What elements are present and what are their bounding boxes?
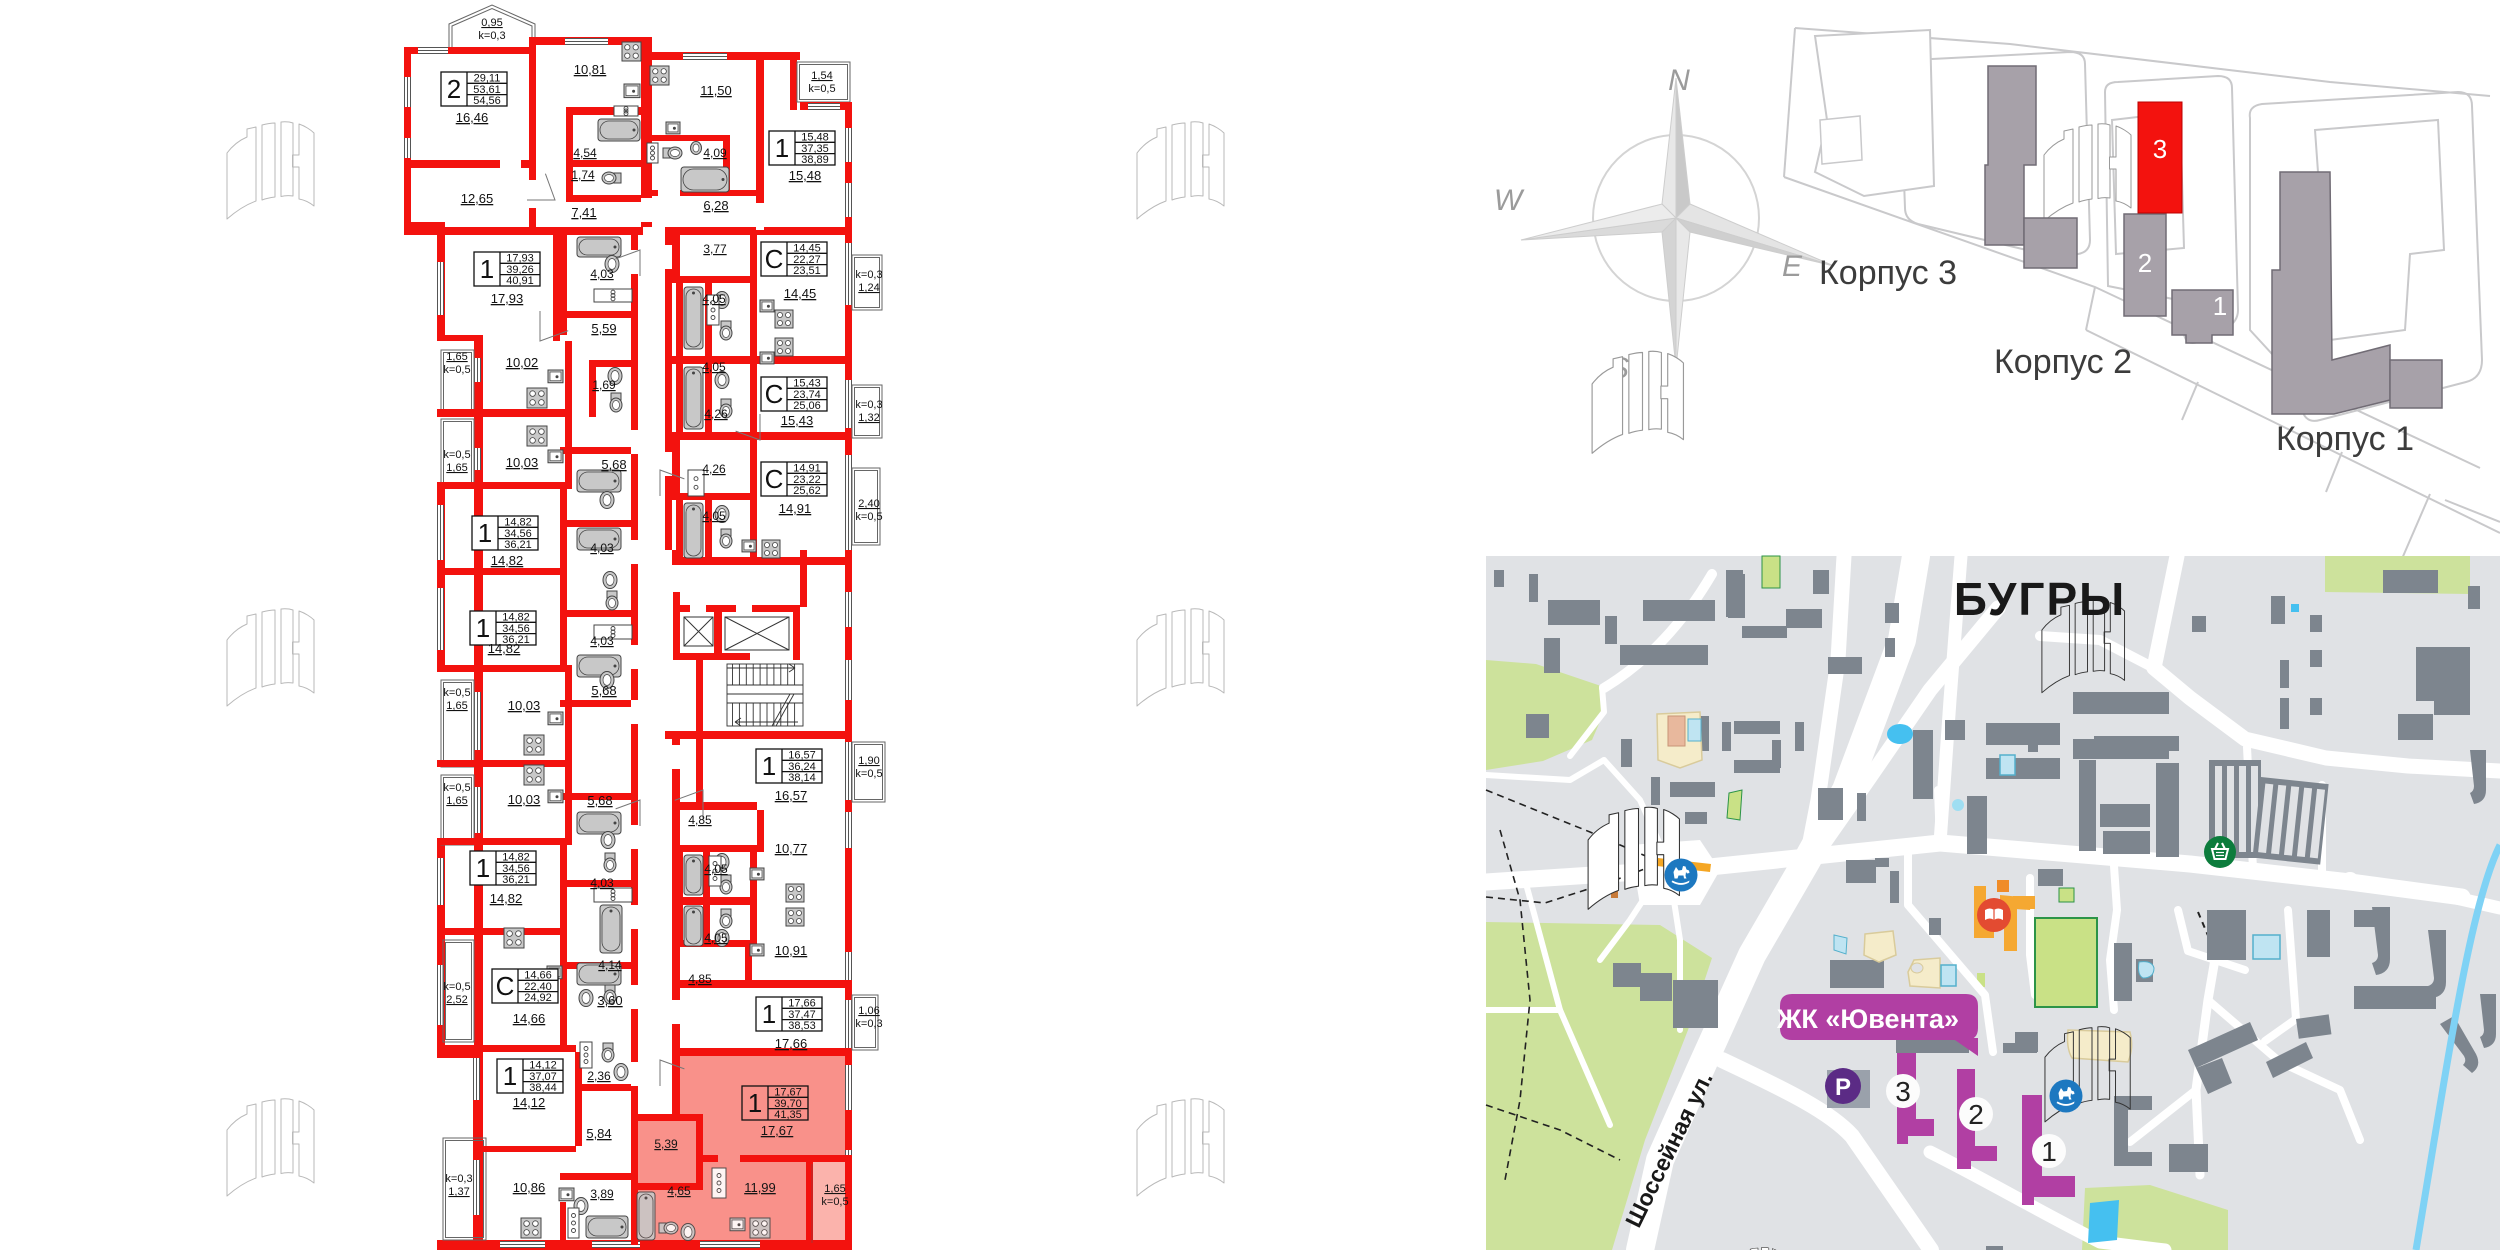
svg-text:1,90: 1,90 <box>858 755 879 767</box>
svg-text:14,82: 14,82 <box>502 852 530 864</box>
svg-text:1,65: 1,65 <box>446 462 467 474</box>
svg-text:15,43: 15,43 <box>793 378 821 390</box>
svg-text:4,03: 4,03 <box>590 634 614 648</box>
svg-text:17,93: 17,93 <box>506 253 534 265</box>
svg-text:1,65: 1,65 <box>446 351 467 363</box>
svg-text:38,44: 38,44 <box>529 1082 557 1094</box>
svg-text:5,68: 5,68 <box>587 793 612 808</box>
svg-text:C: C <box>496 971 515 1001</box>
svg-text:1: 1 <box>480 254 494 284</box>
svg-text:k=0,5: k=0,5 <box>443 449 470 461</box>
svg-text:36,24: 36,24 <box>788 761 816 773</box>
svg-text:34,56: 34,56 <box>502 623 530 635</box>
svg-text:17,66: 17,66 <box>788 998 816 1010</box>
svg-text:4,85: 4,85 <box>688 972 712 986</box>
svg-text:W: W <box>1494 184 1525 217</box>
svg-text:10,86: 10,86 <box>513 1180 546 1195</box>
svg-text:17,66: 17,66 <box>775 1036 808 1051</box>
svg-text:4,26: 4,26 <box>702 462 726 476</box>
svg-text:4,14: 4,14 <box>598 958 622 972</box>
svg-text:37,47: 37,47 <box>788 1009 816 1021</box>
svg-text:C: C <box>765 379 784 409</box>
svg-text:10,03: 10,03 <box>506 455 539 470</box>
svg-text:C: C <box>765 244 784 274</box>
svg-text:k=0,5: k=0,5 <box>443 981 470 993</box>
svg-text:4,05: 4,05 <box>702 360 726 374</box>
svg-text:23,74: 23,74 <box>793 389 821 401</box>
svg-text:38,89: 38,89 <box>801 154 829 166</box>
svg-text:k=0,5: k=0,5 <box>443 782 470 794</box>
svg-text:10,03: 10,03 <box>508 792 541 807</box>
svg-text:2: 2 <box>2138 248 2152 278</box>
svg-text:E: E <box>1782 250 1803 283</box>
svg-text:15,48: 15,48 <box>789 168 822 183</box>
svg-text:17,67: 17,67 <box>761 1123 794 1138</box>
svg-text:k=0,3: k=0,3 <box>445 1173 472 1185</box>
svg-text:14,82: 14,82 <box>504 517 532 529</box>
svg-text:22,27: 22,27 <box>793 254 821 266</box>
svg-text:k=0,3: k=0,3 <box>855 269 882 281</box>
svg-text:4,65: 4,65 <box>667 1184 691 1198</box>
svg-text:23,51: 23,51 <box>793 265 821 277</box>
svg-text:4,54: 4,54 <box>573 146 597 160</box>
svg-text:1,74: 1,74 <box>571 168 595 182</box>
svg-text:14,82: 14,82 <box>490 891 523 906</box>
svg-text:39,70: 39,70 <box>774 1098 802 1110</box>
svg-text:2,36: 2,36 <box>587 1069 611 1083</box>
svg-text:1,54: 1,54 <box>811 70 832 82</box>
svg-text:1: 1 <box>762 751 776 781</box>
svg-text:39,26: 39,26 <box>506 264 534 276</box>
svg-text:12,65: 12,65 <box>461 191 494 206</box>
svg-text:36,21: 36,21 <box>502 874 530 886</box>
svg-text:C: C <box>765 464 784 494</box>
svg-text:5,68: 5,68 <box>591 683 616 698</box>
svg-text:P: P <box>1835 1074 1851 1101</box>
svg-text:1,06: 1,06 <box>858 1005 879 1017</box>
svg-text:k=0,3: k=0,3 <box>855 1018 882 1030</box>
svg-text:1,32: 1,32 <box>858 412 879 424</box>
svg-text:Корпус 1: Корпус 1 <box>2276 420 2414 458</box>
svg-text:1: 1 <box>478 518 492 548</box>
svg-text:1,69: 1,69 <box>592 378 616 392</box>
svg-text:4,05: 4,05 <box>704 931 728 945</box>
svg-text:16,57: 16,57 <box>775 788 808 803</box>
svg-text:11,99: 11,99 <box>744 1180 776 1195</box>
svg-text:14,12: 14,12 <box>513 1095 546 1110</box>
svg-text:16,57: 16,57 <box>788 750 816 762</box>
svg-text:3: 3 <box>1895 1076 1911 1107</box>
svg-text:2: 2 <box>447 74 461 104</box>
svg-text:37,35: 37,35 <box>801 143 829 155</box>
svg-text:14,91: 14,91 <box>779 501 812 516</box>
svg-text:14,82: 14,82 <box>502 612 530 624</box>
svg-text:36,21: 36,21 <box>504 539 532 551</box>
svg-text:11,50: 11,50 <box>700 83 732 98</box>
svg-text:4,03: 4,03 <box>590 541 614 555</box>
svg-text:24,92: 24,92 <box>524 992 552 1004</box>
svg-text:34,56: 34,56 <box>502 863 530 875</box>
svg-text:34,56: 34,56 <box>504 528 532 540</box>
svg-text:15,48: 15,48 <box>801 132 829 144</box>
svg-text:14,91: 14,91 <box>793 463 821 475</box>
svg-text:k=0,5: k=0,5 <box>443 364 470 376</box>
svg-text:0,95: 0,95 <box>481 17 502 29</box>
svg-text:3,89: 3,89 <box>590 1187 614 1201</box>
svg-text:3,60: 3,60 <box>597 993 622 1008</box>
svg-text:1: 1 <box>748 1088 762 1118</box>
svg-text:k=0,5: k=0,5 <box>821 1196 848 1208</box>
svg-text:10,91: 10,91 <box>775 943 808 958</box>
svg-text:2,40: 2,40 <box>858 498 879 510</box>
svg-text:k=0,3: k=0,3 <box>478 30 505 42</box>
svg-text:14,12: 14,12 <box>529 1060 557 1072</box>
svg-text:5,68: 5,68 <box>601 457 626 472</box>
svg-text:10,81: 10,81 <box>574 62 607 77</box>
svg-text:22,40: 22,40 <box>524 981 552 993</box>
svg-text:1: 1 <box>476 613 490 643</box>
svg-text:4,03: 4,03 <box>590 876 614 890</box>
svg-text:14,45: 14,45 <box>784 286 817 301</box>
svg-text:1,65: 1,65 <box>446 795 467 807</box>
svg-text:38,53: 38,53 <box>788 1020 816 1032</box>
svg-text:5,39: 5,39 <box>654 1137 678 1151</box>
svg-text:1: 1 <box>2213 291 2227 321</box>
svg-text:23,22: 23,22 <box>793 474 821 486</box>
svg-text:14,66: 14,66 <box>524 970 552 982</box>
svg-text:5,84: 5,84 <box>586 1126 611 1141</box>
svg-text:14,45: 14,45 <box>793 243 821 255</box>
svg-text:29,11: 29,11 <box>474 73 501 85</box>
svg-text:1: 1 <box>775 133 789 163</box>
svg-text:Корпус 3: Корпус 3 <box>1819 254 1957 292</box>
svg-text:N: N <box>1668 64 1690 97</box>
svg-text:1,65: 1,65 <box>446 700 467 712</box>
svg-text:Корпус 2: Корпус 2 <box>1994 343 2132 381</box>
svg-text:16,46: 16,46 <box>456 110 489 125</box>
svg-text:17,93: 17,93 <box>491 291 524 306</box>
svg-text:1: 1 <box>503 1061 517 1091</box>
svg-text:4,85: 4,85 <box>688 813 712 827</box>
svg-text:15,43: 15,43 <box>781 413 814 428</box>
svg-text:53,61: 53,61 <box>473 84 501 96</box>
svg-text:17,67: 17,67 <box>774 1087 802 1099</box>
svg-text:38,14: 38,14 <box>788 772 816 784</box>
svg-text:1,37: 1,37 <box>448 1186 469 1198</box>
svg-text:k=0,5: k=0,5 <box>808 83 835 95</box>
svg-text:4,05: 4,05 <box>702 509 726 523</box>
svg-text:k=0,5: k=0,5 <box>855 768 882 780</box>
svg-text:6,28: 6,28 <box>703 198 728 213</box>
svg-text:4,05: 4,05 <box>704 862 728 876</box>
svg-text:4,03: 4,03 <box>590 267 614 281</box>
svg-text:10,03: 10,03 <box>508 698 541 713</box>
svg-text:14,82: 14,82 <box>488 641 521 656</box>
svg-text:5,59: 5,59 <box>591 321 616 336</box>
svg-text:40,91: 40,91 <box>506 275 534 287</box>
svg-text:4,05: 4,05 <box>702 292 726 306</box>
svg-text:k=0,5: k=0,5 <box>443 687 470 699</box>
svg-text:3,77: 3,77 <box>703 242 727 256</box>
svg-text:10,02: 10,02 <box>506 355 539 370</box>
svg-text:1: 1 <box>762 999 776 1029</box>
svg-text:25,62: 25,62 <box>793 485 821 497</box>
svg-text:2,52: 2,52 <box>446 994 467 1006</box>
svg-text:1,24: 1,24 <box>858 282 879 294</box>
svg-text:54,56: 54,56 <box>473 95 501 107</box>
svg-text:4,09: 4,09 <box>703 146 727 160</box>
svg-text:3: 3 <box>2153 134 2167 164</box>
svg-text:14,82: 14,82 <box>491 553 524 568</box>
svg-text:k=0,3: k=0,3 <box>855 399 882 411</box>
svg-text:ЖК «Ювента»: ЖК «Ювента» <box>1776 1004 1959 1034</box>
svg-text:k=0,5: k=0,5 <box>855 511 882 523</box>
svg-text:2: 2 <box>1968 1099 1984 1130</box>
svg-text:1: 1 <box>2041 1136 2057 1167</box>
svg-text:14,66: 14,66 <box>513 1011 546 1026</box>
svg-text:БУГРЫ: БУГРЫ <box>1954 573 2126 625</box>
svg-text:1,65: 1,65 <box>824 1183 845 1195</box>
svg-text:4,26: 4,26 <box>704 407 728 421</box>
svg-text:7,41: 7,41 <box>571 205 596 220</box>
svg-text:25,06: 25,06 <box>793 400 821 412</box>
svg-text:41,35: 41,35 <box>774 1109 802 1121</box>
svg-text:10,77: 10,77 <box>775 841 808 856</box>
svg-text:37,07: 37,07 <box>529 1071 557 1083</box>
svg-text:1: 1 <box>476 853 490 883</box>
